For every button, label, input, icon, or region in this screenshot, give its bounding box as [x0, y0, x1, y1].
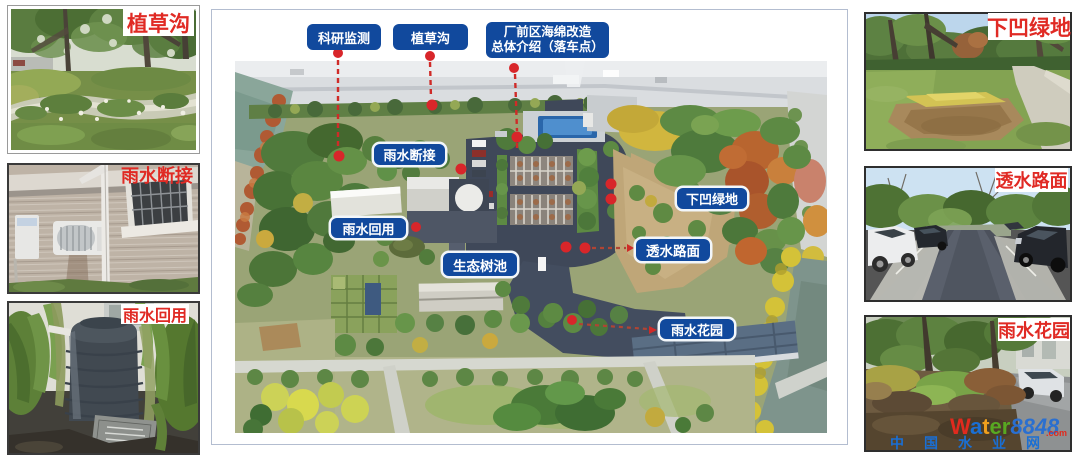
svg-text:中国水业网: 中国水业网: [890, 435, 1060, 450]
